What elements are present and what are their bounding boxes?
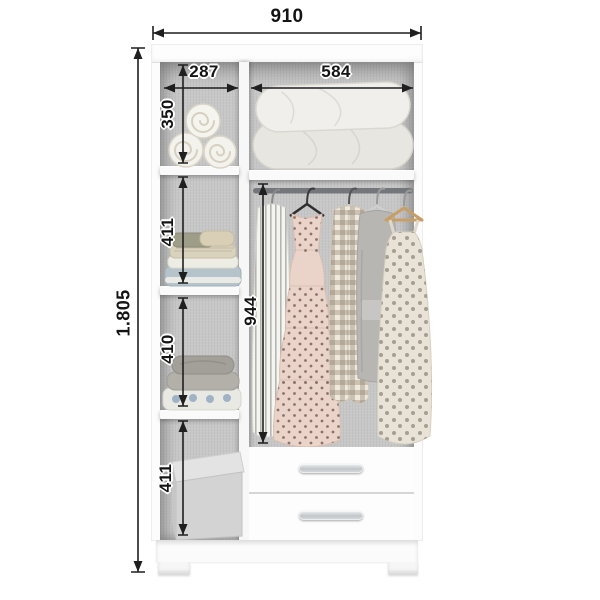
- dimension-lines: [0, 0, 600, 600]
- dim-label-right-width: 584: [321, 62, 351, 82]
- dim-label-shelf4: 411: [156, 464, 176, 493]
- dim-label-overall-height: 1.805: [114, 289, 135, 336]
- dim-label-left-width: 287: [189, 62, 219, 82]
- dim-label-shelf3: 410: [158, 334, 178, 364]
- dim-label-shelf2: 411: [158, 218, 178, 247]
- dim-label-overall-width: 910: [271, 6, 304, 28]
- dim-label-shelf1: 350: [158, 99, 178, 129]
- dim-label-hanging: 944: [241, 296, 261, 326]
- wardrobe-dimension-diagram: 910 1.805 287 584 350 411 410 411 944: [0, 0, 600, 600]
